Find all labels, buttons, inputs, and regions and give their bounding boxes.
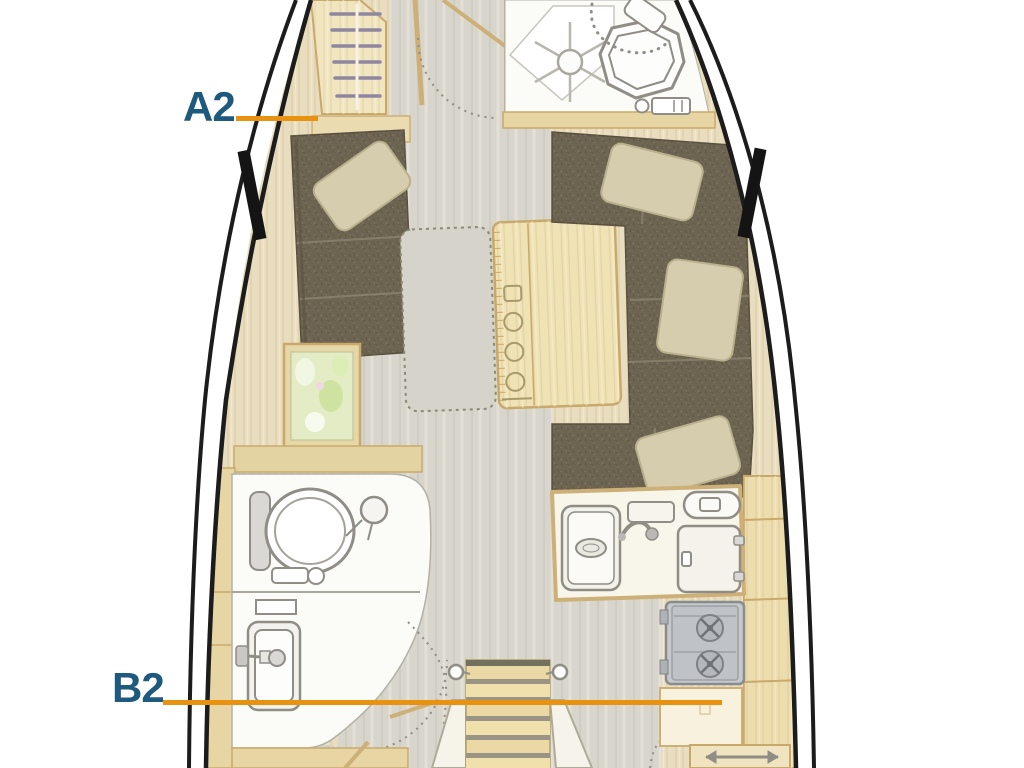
drawer-slide-arrow-icon [690,745,790,768]
toilet-accessory [636,98,691,114]
table-folding-leaf [400,227,496,412]
callout-line-a2 [236,116,318,121]
toilet-roll-holder [272,568,324,584]
cutting-board [628,502,674,522]
burner [697,615,723,641]
burner [697,651,723,677]
round-sink-icon [684,492,740,518]
toilet-icon [250,489,354,573]
port-settee [291,130,414,360]
aft-cabin-floor-edge [232,748,408,768]
yacht-floorplan-drawing [0,0,1024,768]
callout-label-a2: A2 [183,86,235,128]
galley-lower-cabinet [660,688,742,746]
callout-label-b2: B2 [112,667,164,709]
yacht-floorplan-page: A2 B2 [0,0,1024,768]
saloon-table [400,218,621,411]
callout-line-b2 [163,700,722,705]
pillow-icon [656,258,744,362]
companionway-stairs-icon [466,660,550,768]
galley-sink-icon [562,506,620,590]
stove-icon [660,602,744,684]
shelf [256,600,296,614]
toilet-icon [600,20,684,98]
fridge-icon [678,526,744,592]
nav-desk-shelf [234,446,422,472]
